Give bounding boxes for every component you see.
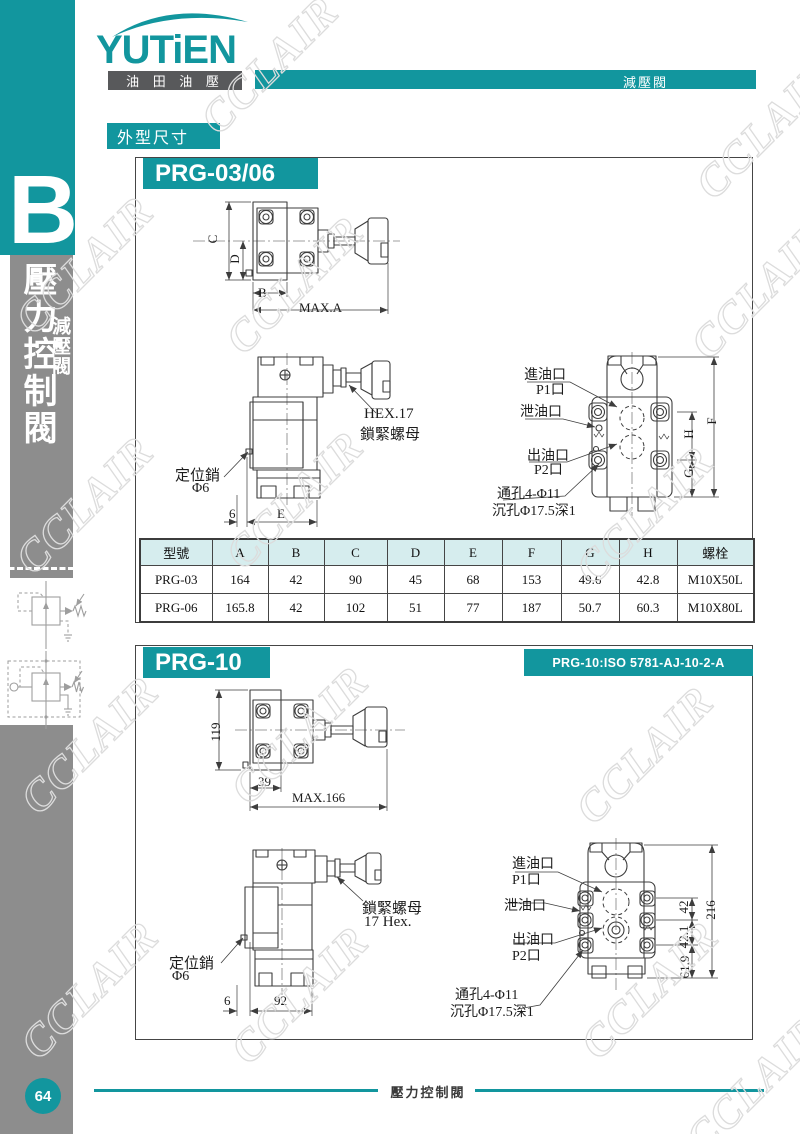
col-a: A [212,539,268,566]
hydraulic-symbol-1 [10,581,84,651]
dim-label-61-9: 61.9 [678,952,692,982]
dim-label-6: 6 [229,506,236,522]
col-h: H [619,539,677,566]
label-p1: P1口 [536,379,565,399]
dim-label-42: 42 [677,896,691,918]
col-bolt: 螺栓 [677,539,754,566]
category-tab-label: 減壓閥 [623,72,668,91]
brand-logo: YUTiEN [96,28,236,73]
col-e: E [444,539,502,566]
dim-label-119: 119 [209,717,223,747]
prg0306-section-header: PRG-03/06 [143,158,318,189]
dimension-lines [223,942,312,1016]
table-row: PRG-06 165.8 42 102 51 77 187 50.7 60.3 … [140,594,754,623]
dim-label-g: G [682,463,696,483]
col-model: 型號 [140,539,212,566]
table-row: PRG-03 164 42 90 45 68 153 49.6 42.8 M10… [140,566,754,594]
table-header-row: 型號 A B C D E F G H 螺栓 [140,539,754,566]
label-pin-diameter: Φ6 [192,481,209,497]
valve-body-ports [578,843,655,978]
sidebar-bottom-gray-bar [0,725,73,1134]
brand-logo-subtitle: 油 田 油 壓 [108,71,242,90]
col-c: C [324,539,387,566]
label-17hex: 17 Hex. [364,914,412,931]
label-counterbore: 沉孔Φ17.5深1 [450,1001,534,1021]
label-pin-diameter: Φ6 [172,969,189,985]
col-g: G [561,539,619,566]
valve-body-ports [589,356,672,511]
hydraulic-symbol-2 [2,651,88,729]
dim-label-6: 6 [224,993,231,1009]
label-locknut: 鎖緊螺母 [360,423,420,444]
footer-rule-left [94,1089,378,1092]
category-tab-bar: 減壓閥 [255,70,756,89]
prg10-section-header: PRG-10 [143,647,270,678]
page-number-badge: 64 [25,1078,61,1114]
dim-label-d: D [228,249,242,269]
sidebar-section-letter: B [8,168,78,252]
col-f: F [502,539,561,566]
dim-label-max166: MAX.166 [292,790,345,806]
dim-label-e: E [277,506,285,522]
dim-label-b: B [258,285,267,301]
label-counterbore: 沉孔Φ17.5深1 [492,500,576,520]
sidebar-dashed-divider [0,567,74,570]
footer-title: 壓力控制閥 [383,1082,473,1101]
label-p1: P1口 [512,869,541,889]
dim-label-42-1: 42.1 [677,922,691,952]
datasheet-page: B 壓力控制閥 減壓閥 64 [0,0,800,1134]
dim-label-c: C [206,229,220,249]
sidebar-subtitle-vertical: 減壓閥 [46,316,73,376]
dimensions-table: 型號 A B C D E F G H 螺栓 PRG-03 164 42 90 4… [139,538,755,623]
footer-rule-right [475,1089,764,1092]
label-hex17: HEX.17 [364,406,414,423]
prg10-iso-label: PRG-10:ISO 5781-AJ-10-2-A [524,649,753,676]
dim-label-39: 39 [258,774,271,790]
section-title: 外型尺寸 [107,123,220,149]
valve-body-side [241,850,381,986]
col-d: D [387,539,444,566]
label-drain: 泄油口 [504,895,546,915]
label-drain: 泄油口 [520,401,562,421]
label-p2: P2口 [512,945,541,965]
dim-label-92: 92 [274,993,287,1009]
dim-label-h: H [682,424,696,444]
col-b: B [268,539,324,566]
dim-label-maxa: MAX.A [299,300,342,316]
dim-label-216: 216 [704,896,718,924]
dim-label-f: F [705,411,719,431]
label-p2: P2口 [534,459,563,479]
